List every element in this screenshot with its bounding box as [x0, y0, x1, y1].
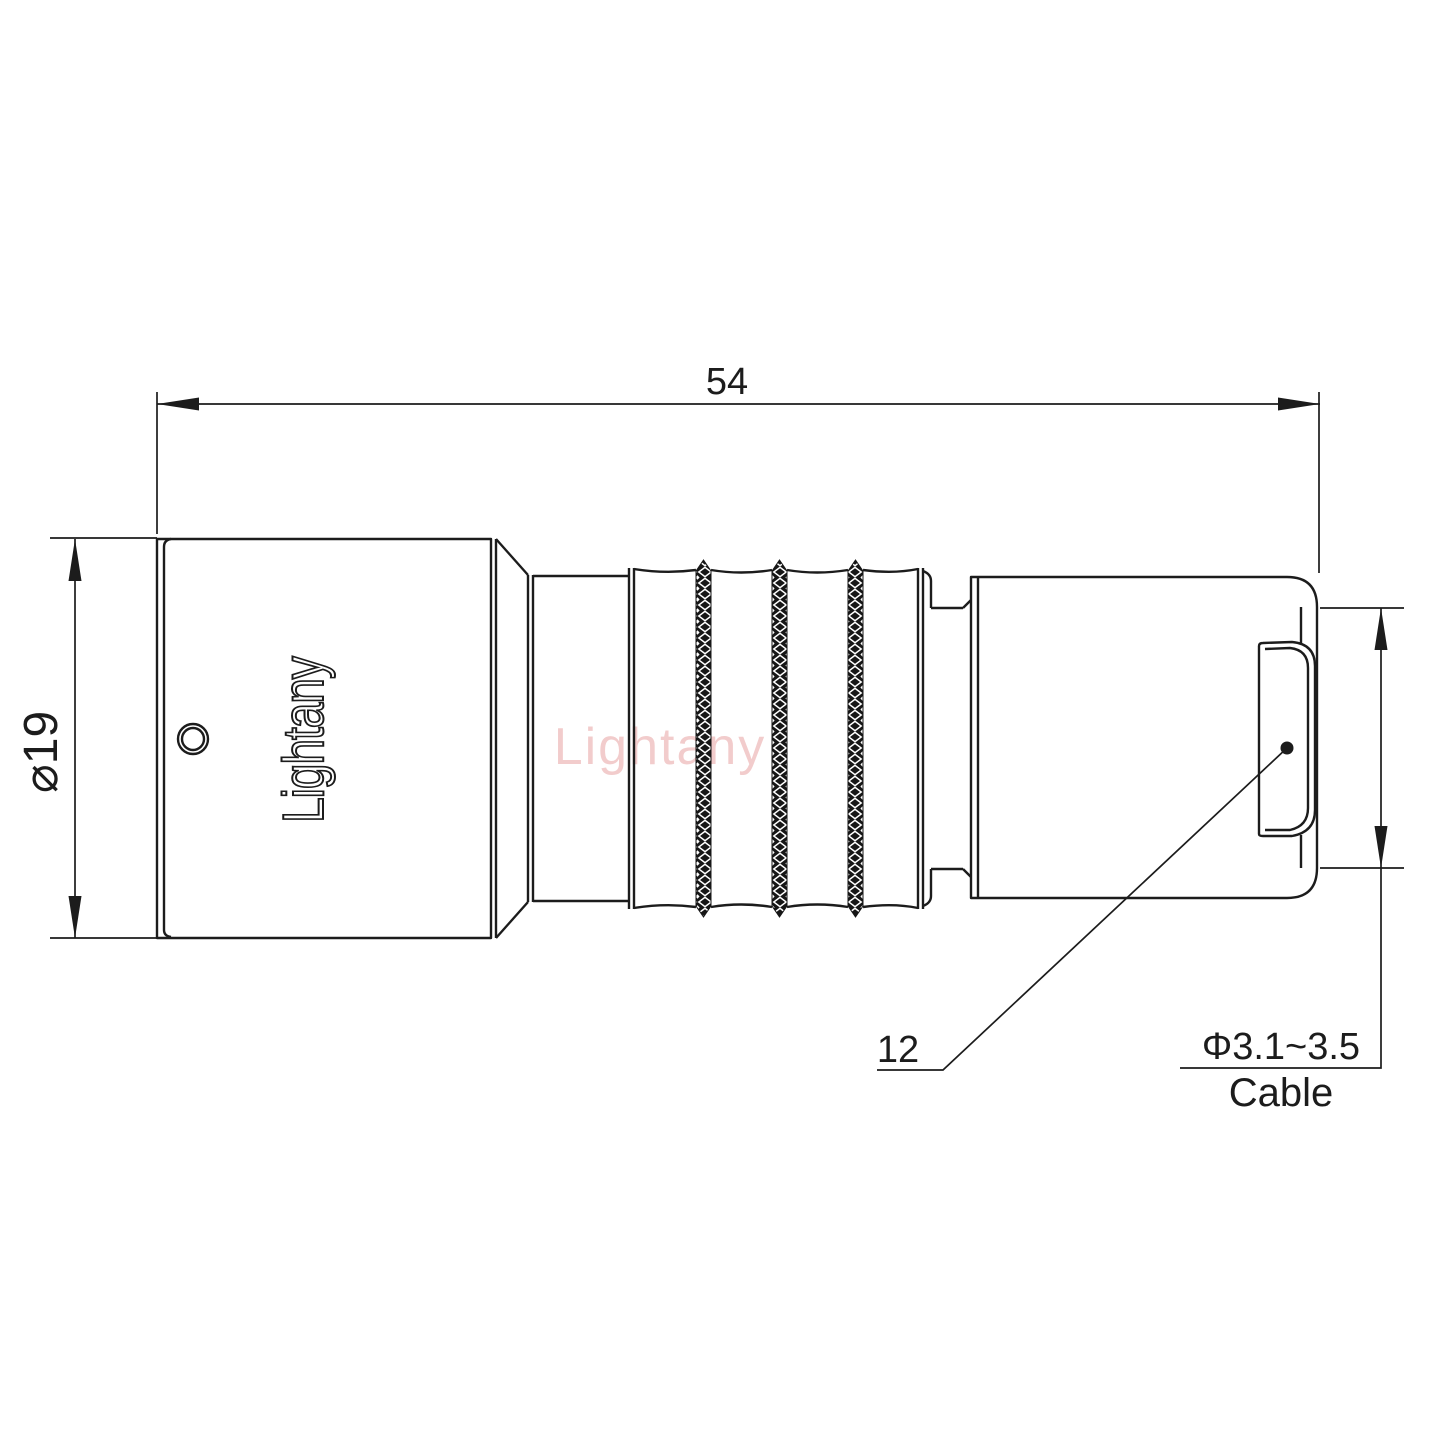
arrowhead-left — [157, 398, 199, 411]
cable-label: Cable — [1229, 1071, 1334, 1115]
backshell-ref-value: 12 — [877, 1029, 919, 1071]
connector-main-body: Lightany — [157, 539, 496, 938]
dimension-overall-length: 54 — [157, 361, 1320, 573]
body-diameter-value: ⌀19 — [15, 711, 68, 793]
arrowhead-right — [1278, 398, 1320, 411]
knurl-band-1 — [696, 560, 711, 917]
neck-groove — [931, 600, 971, 877]
arrowhead-top — [69, 539, 82, 581]
arrowhead-bottom — [1375, 826, 1388, 868]
dimension-cable-entry: Φ3.1~3.5 Cable — [1180, 608, 1404, 1115]
cable-bushing — [1259, 642, 1315, 836]
brand-watermark: Lightany — [554, 718, 767, 776]
technical-drawing-page: Lightany Lightany — [0, 0, 1440, 1440]
knurl-band-3 — [848, 560, 863, 917]
arrowhead-top — [1375, 608, 1388, 650]
overall-length-value: 54 — [706, 361, 748, 403]
knurl-band-2 — [772, 560, 787, 917]
arrowhead-bottom — [69, 896, 82, 938]
dimension-body-diameter: ⌀19 — [15, 538, 157, 938]
brand-engraving: Lightany — [272, 656, 336, 823]
leader-backshell-ref: 12 — [877, 742, 1294, 1072]
technical-drawing-canvas: Lightany Lightany — [0, 0, 1440, 1440]
body-hole-inner — [182, 728, 204, 750]
cable-range-value: Φ3.1~3.5 — [1202, 1026, 1360, 1068]
strain-relief-backshell — [971, 577, 1317, 898]
